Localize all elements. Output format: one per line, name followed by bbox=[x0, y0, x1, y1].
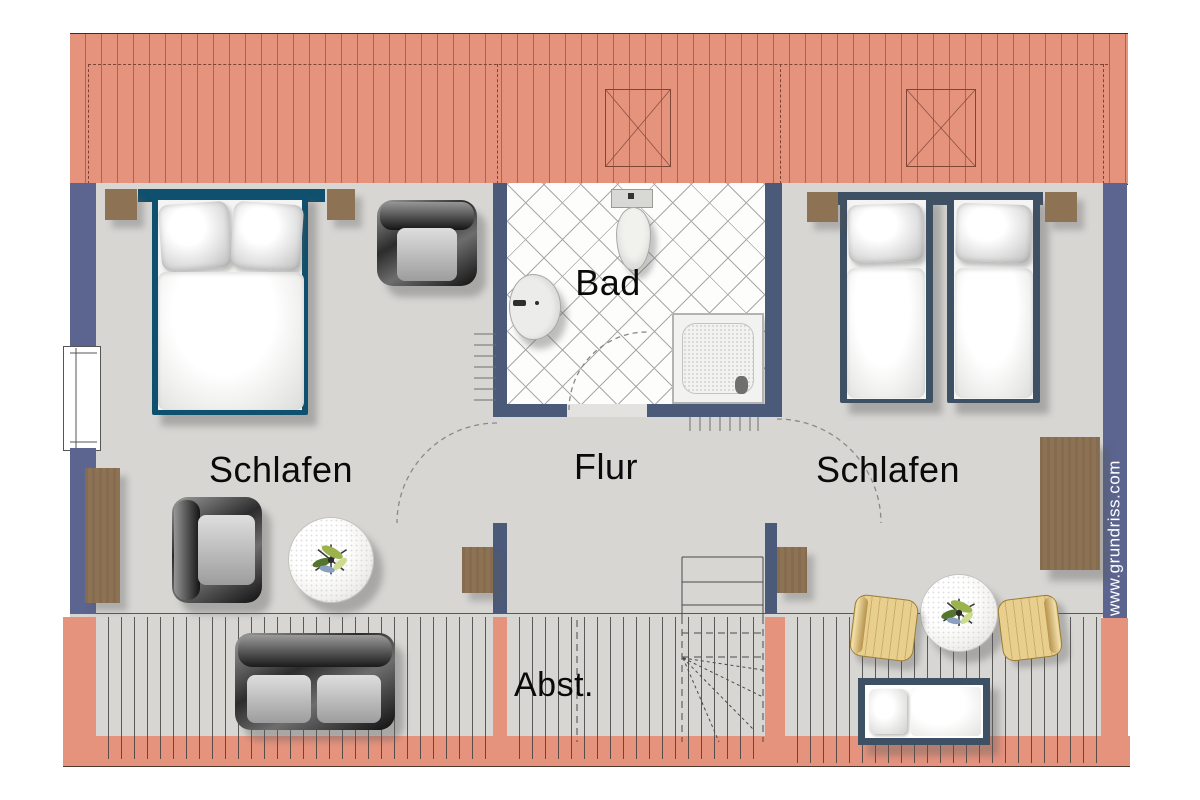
roof-band-top bbox=[70, 33, 1128, 185]
sofa-seat bbox=[317, 675, 381, 723]
bathroom-wall-left bbox=[493, 183, 507, 417]
single-bed bbox=[947, 192, 1040, 403]
pillow bbox=[847, 203, 924, 264]
roof-dashed-line bbox=[780, 64, 781, 184]
plant-icon bbox=[933, 587, 985, 639]
roof-dashed-line bbox=[497, 64, 498, 184]
roof-strip bbox=[765, 617, 785, 742]
shower-drain bbox=[735, 376, 748, 394]
room-label-bedroom-right: Schlafen bbox=[816, 449, 960, 491]
double-bed bbox=[152, 190, 308, 415]
wicker-chair bbox=[848, 593, 919, 662]
room-label-bedroom-left: Schlafen bbox=[209, 449, 353, 491]
roof-dashed-line bbox=[88, 64, 1108, 65]
wicker-chair bbox=[996, 594, 1063, 663]
faucet-dot bbox=[535, 301, 539, 305]
armchair-seat bbox=[198, 515, 255, 585]
single-bed bbox=[840, 192, 933, 403]
pillow bbox=[158, 201, 232, 272]
wardrobe bbox=[85, 468, 120, 603]
armchair bbox=[172, 497, 262, 603]
duvet bbox=[911, 687, 981, 736]
armchair-seat bbox=[397, 228, 457, 281]
bathroom-wall-right bbox=[765, 183, 782, 417]
armchair-back bbox=[174, 500, 200, 600]
armchair-back bbox=[380, 202, 474, 230]
faucet-icon bbox=[513, 300, 526, 306]
nightstand bbox=[1045, 192, 1077, 222]
watermark-text: www.grundriss.com bbox=[1102, 448, 1127, 628]
nightstand bbox=[807, 192, 838, 222]
plant-icon bbox=[305, 534, 357, 586]
bathroom-wall-bottom bbox=[647, 404, 782, 417]
round-table bbox=[920, 574, 998, 652]
roof-window-icon bbox=[605, 89, 671, 167]
exterior-wall-left bbox=[70, 183, 96, 347]
armchair bbox=[377, 200, 477, 286]
room-label-storage: Abst. bbox=[514, 666, 594, 705]
duvet bbox=[158, 272, 304, 410]
hallway-wall-left bbox=[493, 523, 507, 614]
pillow bbox=[869, 689, 907, 734]
pillow bbox=[230, 201, 304, 272]
round-side-table bbox=[288, 517, 374, 603]
pillow bbox=[955, 203, 1032, 264]
sofa-seat bbox=[247, 675, 311, 723]
nightstand bbox=[105, 189, 137, 220]
floor-plan: Schlafen Bad Flur Schlafen Abst. www.gru… bbox=[0, 0, 1200, 800]
duvet bbox=[955, 268, 1033, 398]
roof-dashed-line bbox=[1103, 64, 1104, 184]
roof-window-icon bbox=[906, 89, 976, 167]
sofa bbox=[235, 633, 395, 730]
sofa-back bbox=[238, 635, 392, 667]
room-label-hallway: Flur bbox=[574, 446, 638, 488]
window-icon bbox=[63, 346, 101, 451]
roof-dashed-line bbox=[88, 64, 89, 184]
roof-strip bbox=[493, 617, 507, 742]
shower-icon bbox=[672, 313, 764, 404]
duvet bbox=[847, 268, 925, 398]
nightstand bbox=[327, 189, 355, 220]
toilet-flush-button bbox=[628, 193, 634, 199]
bathroom-door-opening bbox=[567, 404, 647, 417]
dresser bbox=[1040, 437, 1100, 570]
desk bbox=[462, 547, 493, 593]
chair-back bbox=[851, 597, 869, 654]
child-bed bbox=[858, 678, 990, 745]
desk bbox=[777, 547, 807, 593]
bathroom-wall-bottom bbox=[493, 404, 567, 417]
hallway-wall-right bbox=[765, 523, 777, 614]
room-label-bathroom: Bad bbox=[575, 262, 641, 304]
